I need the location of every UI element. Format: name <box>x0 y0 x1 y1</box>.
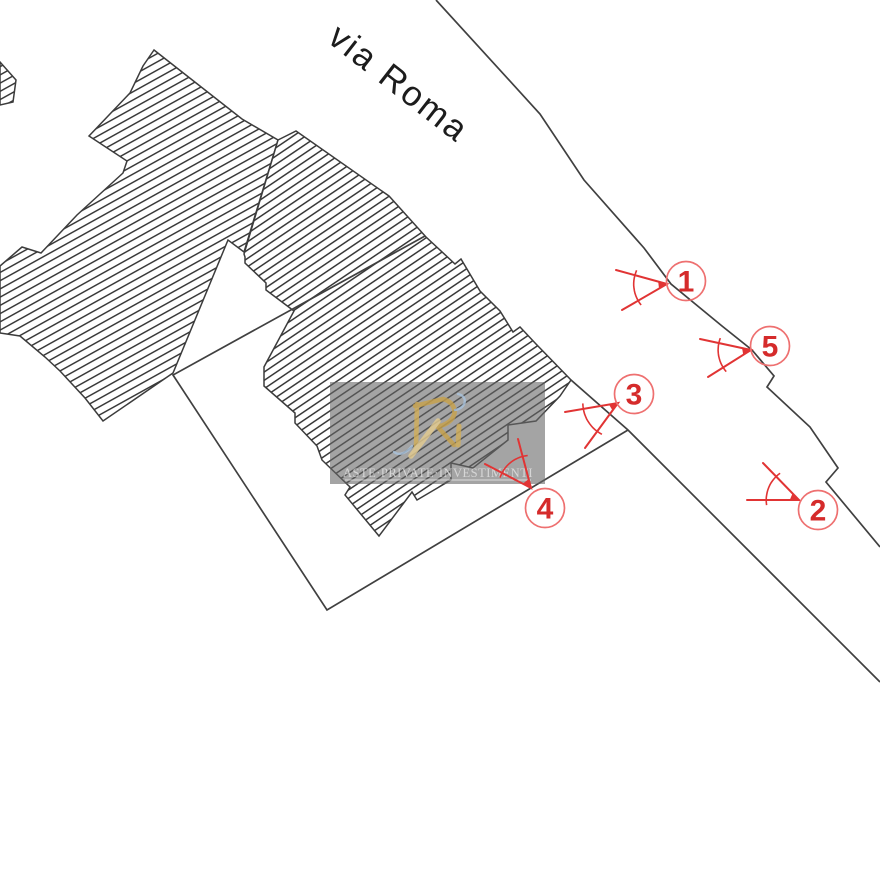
svg-text:3: 3 <box>626 379 643 412</box>
svg-text:4: 4 <box>537 493 554 526</box>
svg-text:5: 5 <box>762 331 779 364</box>
svg-text:1: 1 <box>678 266 695 299</box>
svg-text:2: 2 <box>810 495 827 528</box>
